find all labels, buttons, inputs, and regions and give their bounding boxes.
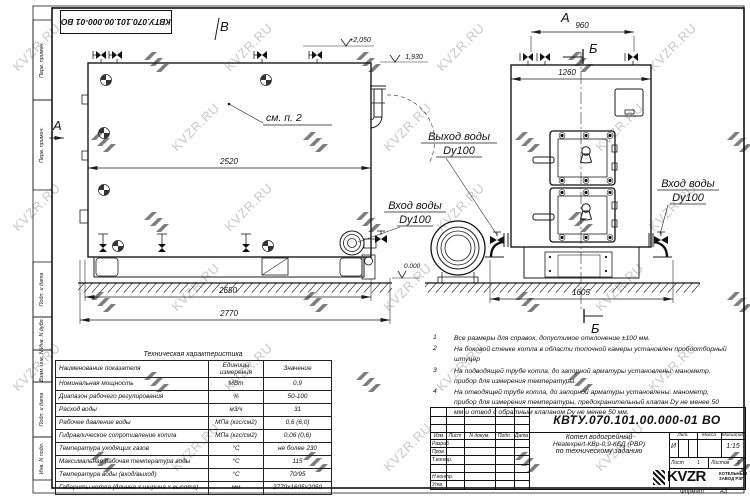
tb-lit-label: Лит.	[669, 433, 697, 439]
see-note-label: см. п. 2	[266, 112, 302, 124]
frame-label-vzam-inv: Взам. инв. N	[33, 350, 52, 382]
frame-label-inv-podl: Инв. N подл.	[33, 437, 52, 480]
table-cell: %	[209, 391, 264, 404]
watermark-bars-icon	[515, 292, 540, 312]
dim-2770: 2770	[219, 309, 238, 318]
watermark-text: KVZR.RU	[381, 420, 435, 474]
watermark-text: KVZR.RU	[381, 100, 435, 154]
dim-1605: 1605	[572, 288, 590, 297]
ground-line	[78, 283, 700, 293]
tb-mass-label: Масса	[697, 433, 721, 439]
tb-role-razrab: Разраб.	[432, 441, 450, 447]
product-line1: Котел водогрейный	[529, 434, 669, 441]
kvzr-logo-stripes-icon	[653, 470, 665, 485]
tb-sheets-label: Листов	[711, 460, 729, 466]
table-cell: °С	[209, 443, 264, 456]
table-row: Диапазон рабочего регулирования%50-100	[56, 391, 332, 404]
elev-pipe: 1,930	[405, 54, 423, 61]
table-cell: Расход воды	[56, 404, 209, 417]
section-mark-a-side: А	[52, 118, 62, 133]
watermark-bars-icon	[303, 292, 328, 312]
table-cell: не более 230	[264, 443, 332, 456]
tb-role-utv: Утв.	[432, 482, 443, 488]
tb-role-prov: Пров.	[432, 449, 445, 455]
elev-zero: 0.000	[404, 263, 421, 270]
frame-label-perv-primen-2: Перв. примен.	[33, 100, 52, 190]
outlet-corner-pipe	[485, 232, 508, 257]
tb-header-list: Лист	[446, 433, 464, 439]
table-cell: Номинальная мощность	[56, 378, 209, 391]
tb-scale-label: Масштаб	[721, 433, 745, 439]
table-cell: м3/ч	[209, 404, 264, 417]
tb-scale-value: 1:15	[721, 444, 745, 450]
table-row: Габариты котла (длинна х ширина х высота…	[56, 482, 332, 495]
watermark-text: KVZR.RU	[646, 20, 700, 74]
format-value: А3	[720, 489, 727, 495]
section-mark-b-top: Б	[589, 41, 598, 56]
product-line2: Heatexpert-КВр-0,9-КБД (РВР)	[529, 441, 669, 448]
table-cell: Максимальная рабочая температура воды	[56, 456, 209, 469]
valve-icon	[93, 51, 322, 63]
top-stamp-number: КВТУ.070.101.00.000-01 ВО	[61, 17, 171, 27]
spec-header-name: Наименование показателя	[56, 361, 209, 378]
tb-header-podp: Подп.	[495, 433, 514, 439]
title-block: Изм Лист N докум. Подп. Дата Разраб. Про…	[430, 407, 746, 490]
section-mark-v: В	[220, 19, 229, 34]
table-cell: МВт	[209, 378, 264, 391]
tb-sheet-label: Лист	[671, 460, 684, 466]
dim-2520: 2520	[219, 157, 238, 166]
table-cell: Температура уходящих газов	[56, 443, 209, 456]
view-mark-a: А	[560, 10, 570, 25]
tb-sheets-value: 2	[737, 460, 740, 466]
table-cell: 115	[264, 456, 332, 469]
format-field: Формат А3	[680, 489, 744, 495]
watermark-bars-icon	[727, 292, 750, 312]
tb-role-tkontr: Т.контр.	[432, 457, 452, 463]
table-cell: 0,9	[264, 378, 332, 391]
boiler-side-view	[80, 51, 435, 279]
table-cell: 70/95	[264, 469, 332, 482]
watermark-bars-icon	[91, 132, 116, 152]
elev-top: +2,050	[349, 37, 371, 44]
table-row: Рабочее давление водыМПа (кгс/см2)0,6 (6…	[56, 417, 332, 430]
table-cell: Диапазон рабочего регулирования	[56, 391, 209, 404]
inlet-corner-pipe	[649, 232, 672, 257]
watermark-text: KVZR.RU	[222, 20, 276, 74]
watermark-text: KVZR.RU	[434, 20, 488, 74]
spec-header-units: Единицы измерения	[209, 361, 264, 378]
note-item: 2На боковой стенке котла в области топоч…	[433, 345, 729, 365]
note-item: 1Все размеры для справок, допустимое отк…	[433, 334, 729, 344]
table-cell: °С	[209, 456, 264, 469]
table-cell: Гидравлическое сопротивление котла	[56, 430, 209, 443]
note-number: 1	[433, 334, 454, 344]
doc-number: КВТУ.070.101.00.000-01 ВО	[529, 408, 745, 432]
watermark-text: KVZR.RU	[222, 180, 276, 234]
watermark-bars-icon	[91, 292, 116, 312]
watermark-text: KVZR.RU	[593, 100, 647, 154]
spec-header-value: Значение	[264, 361, 332, 378]
spec-table: Техническая характеристика Наименование …	[55, 351, 331, 495]
dim-960: 960	[575, 21, 589, 30]
tb-header-data: Дата	[514, 433, 529, 439]
spec-table-title: Техническая характеристика	[55, 351, 331, 358]
table-cell: МПа (кгс/см2)	[209, 430, 264, 443]
watermark-bars-icon	[303, 132, 328, 152]
note-text: Все размеры для справок, допустимое откл…	[454, 334, 729, 344]
table-cell: °С	[209, 469, 264, 482]
table-row: Температура воды (вход/выход)°С70/95	[56, 469, 332, 482]
note-item: 3На подводящей трубе котла, до запорной …	[433, 367, 729, 387]
frame-label-podp-data-1: Подп. и дата	[33, 262, 52, 317]
table-cell: 50-100	[264, 391, 332, 404]
upper-door	[533, 131, 617, 185]
water-outlet-dy: Dy100	[443, 145, 476, 157]
table-cell: МПа (кгс/см2)	[209, 417, 264, 430]
tb-header-ndokum: N докум.	[464, 433, 495, 439]
watermark-bars-icon	[144, 52, 169, 72]
keyhole-icon	[581, 204, 592, 220]
top-stamp: КВТУ.070.101.00.000-01 ВО	[60, 10, 172, 34]
tb-header-izm: Изм	[432, 433, 445, 439]
water-inlet-side-label: Вход воды	[388, 200, 441, 212]
watermark-bars-icon	[515, 132, 540, 152]
tb-sheet-value: 1	[697, 460, 700, 466]
watermark-bars-icon	[356, 372, 381, 392]
kvzr-logo: KVZR	[667, 468, 706, 485]
table-cell: 0,6 (6,0)	[264, 417, 332, 430]
product-line3: по техническому заданию	[529, 448, 669, 455]
table-cell: 2770х1605х2050	[264, 482, 332, 495]
company-line2: ЗАВОД РЭП	[719, 476, 747, 481]
table-cell: 31	[264, 404, 332, 417]
format-label: Формат	[680, 489, 704, 495]
table-cell: Температура воды (вход/выход)	[56, 469, 209, 482]
watermark-bars-icon	[727, 132, 750, 152]
frame-label-podp-data-2: Подп. и дата	[33, 382, 52, 437]
tb-role-nkontr: Н.контр.	[432, 474, 453, 480]
table-row: Номинальная мощностьМВт0,9	[56, 378, 332, 391]
door-handle	[533, 214, 554, 220]
watermark-text: KVZR.RU	[169, 100, 223, 154]
product-name: Котел водогрейный Heatexpert-КВр-0,9-КБД…	[529, 434, 669, 455]
note-text: На подводящей трубе котла, до запорной а…	[454, 367, 729, 387]
elevation-marks: +2,050 1,930 0.000	[303, 37, 428, 278]
drawing-sheet: KVZR.RUKVZR.RUKVZR.RUKVZR.RUKVZR.RUKVZR.…	[0, 0, 750, 500]
water-inlet-side-dy: Dy100	[399, 214, 432, 226]
target-mark-icon	[99, 75, 274, 252]
frame-label-perv-primen-1: Перв. примен.	[33, 20, 52, 100]
table-cell: Габариты котла (длинна х ширина х высота…	[56, 482, 209, 495]
table-cell: 0,06 (0,6)	[264, 430, 332, 443]
table-cell: мм	[209, 482, 264, 495]
company-name: КОТЕЛЬНЫЙ ЗАВОД РЭП	[719, 471, 747, 482]
table-row: Расход водым3/ч31	[56, 404, 332, 417]
watermark-bars-icon	[356, 52, 381, 72]
water-outlet-label: Выход воды	[428, 131, 490, 143]
table-row: Гидравлическое сопротивление котлаМПа (к…	[56, 430, 332, 443]
door-handle	[533, 157, 554, 163]
table-row: Температура уходящих газов°Сне более 230	[56, 443, 332, 456]
table-row: Максимальная рабочая температура воды°С1…	[56, 456, 332, 469]
frame-label-inv-dubl: Инв. N дубл.	[33, 317, 52, 350]
note-number: 2	[433, 345, 454, 365]
watermark-bars-icon	[144, 212, 169, 232]
watermark-bars-icon	[568, 212, 593, 232]
keyhole-icon	[581, 147, 592, 163]
watermark-bars-icon	[356, 212, 381, 232]
callouts: см. п. 2 Выход воды Dy100 Вход воды Dy10…	[228, 103, 719, 242]
dim-1260: 1260	[558, 68, 576, 77]
tb-lit-value: И	[669, 444, 678, 450]
table-cell: Рабочее давление воды	[56, 417, 209, 430]
water-inlet-front-dy: Dy100	[672, 192, 705, 204]
note-text: На боковой стенке котла в области топочн…	[454, 345, 729, 365]
note-number: 3	[433, 367, 454, 387]
dim-2650: 2650	[218, 286, 237, 295]
water-inlet-front-label: Вход воды	[661, 178, 714, 190]
